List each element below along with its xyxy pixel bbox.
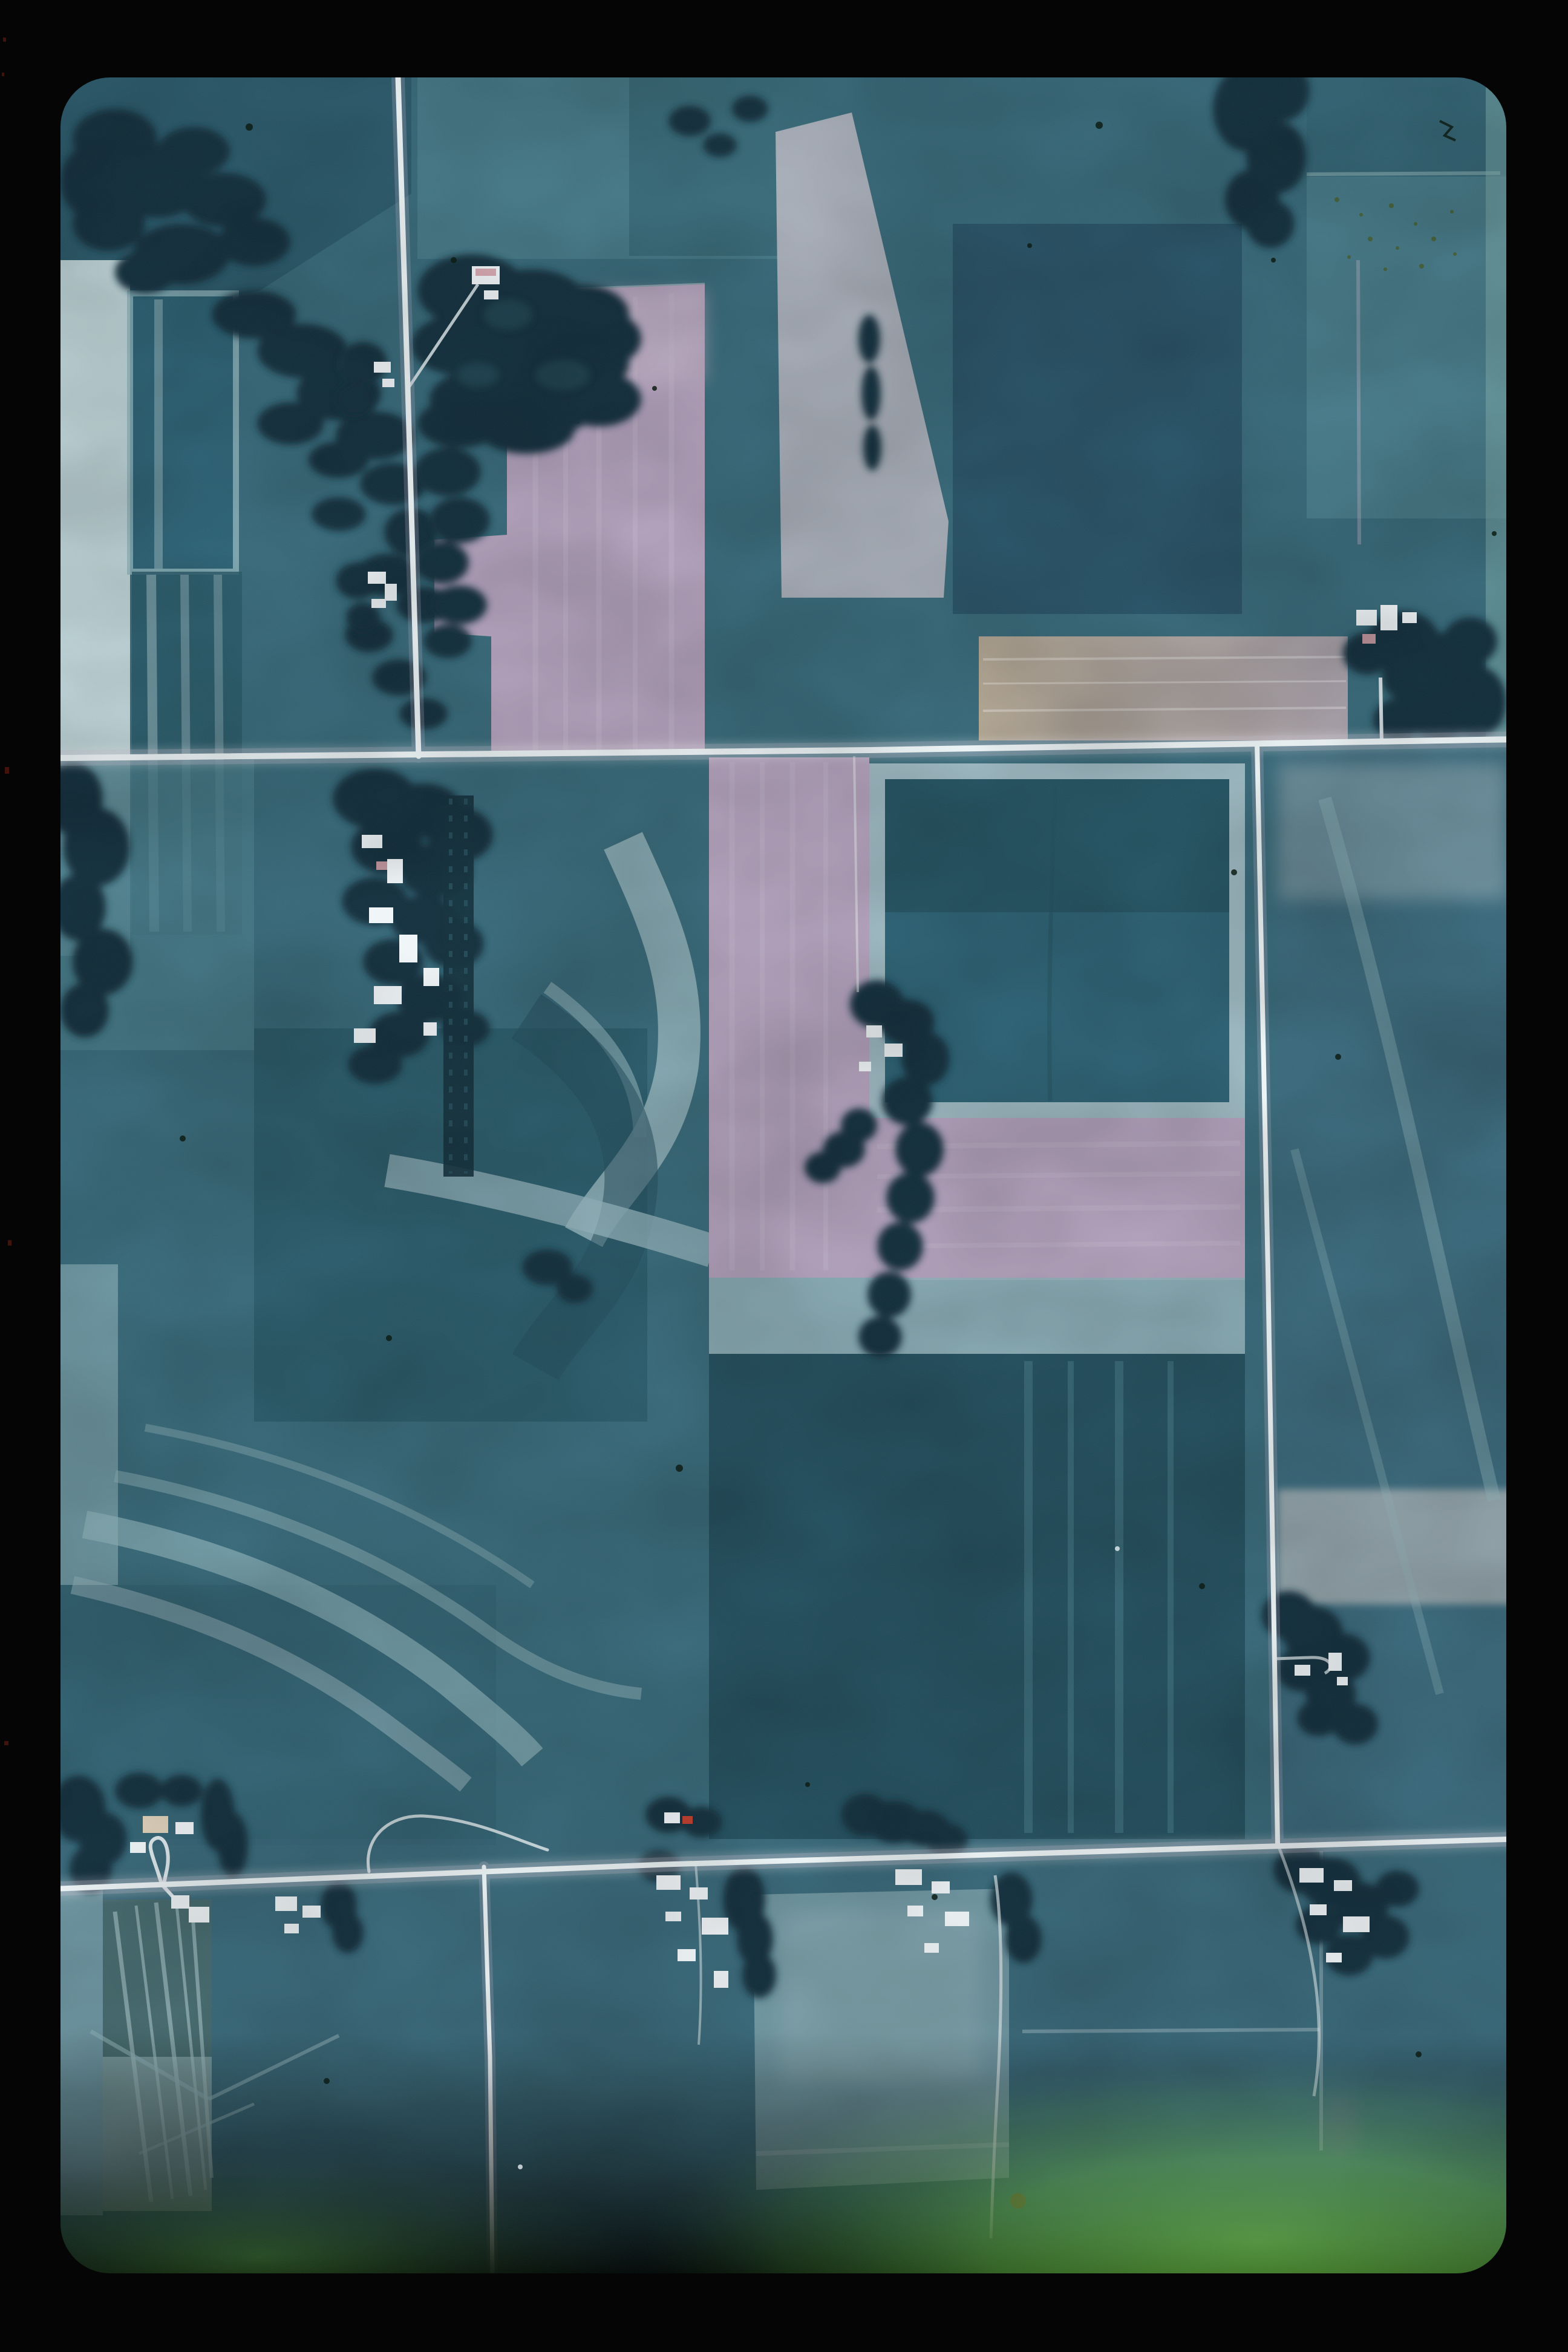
film-slide — [0, 0, 1568, 2352]
film-grain — [60, 77, 1506, 2273]
photo-transparency — [42, 60, 1515, 2276]
